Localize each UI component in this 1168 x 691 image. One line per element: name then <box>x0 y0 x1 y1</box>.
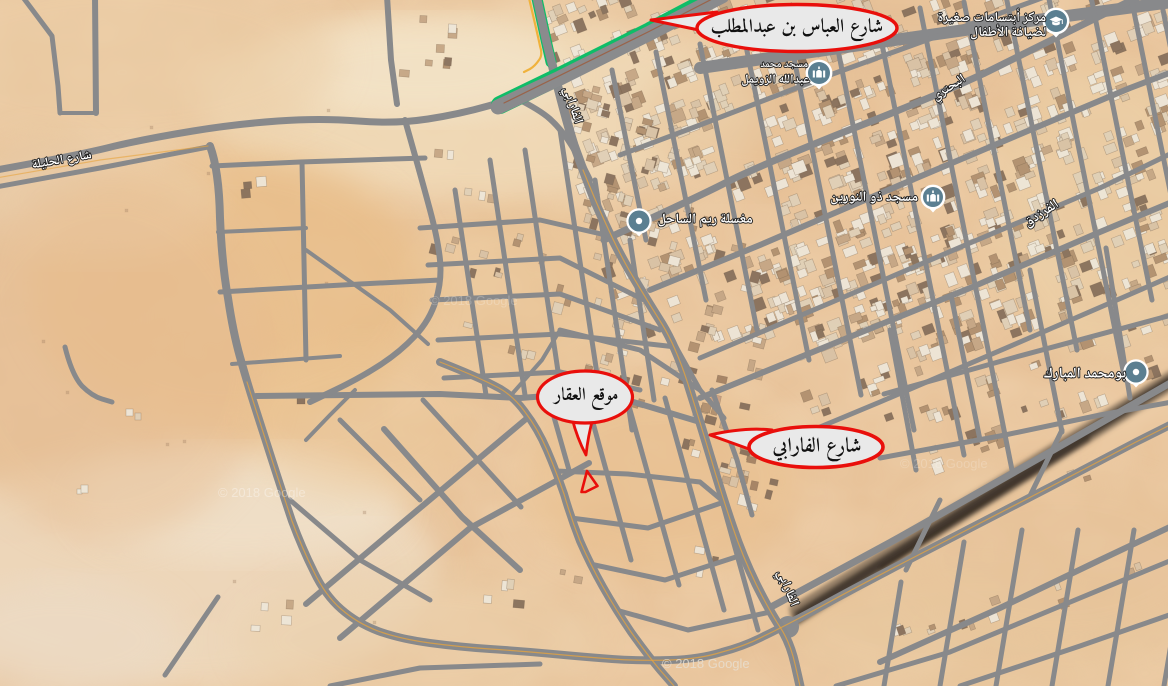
svg-text:© 2018 Google: © 2018 Google <box>218 485 306 500</box>
svg-text:© 2018 Google: © 2018 Google <box>900 456 988 471</box>
svg-text:© 2018 Google: © 2018 Google <box>430 293 518 308</box>
svg-text:© 2018 Google: © 2018 Google <box>662 656 750 671</box>
